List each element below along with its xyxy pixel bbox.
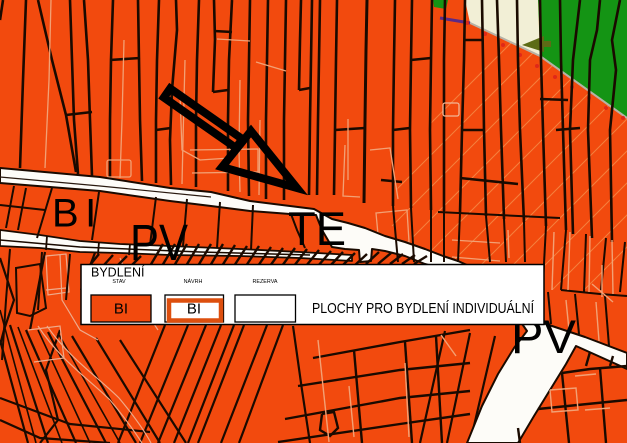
svg-text:BI: BI [114,301,128,318]
svg-text:STAV: STAV [112,279,126,285]
svg-text:TE: TE [288,203,346,256]
svg-text:BI: BI [52,192,103,236]
svg-text:PLOCHY PRO BYDLENÍ INDIVIDUÁLN: PLOCHY PRO BYDLENÍ INDIVIDUÁLNÍ [312,300,534,317]
svg-text:REZERVA: REZERVA [253,279,278,285]
svg-text:NÁVRH: NÁVRH [184,278,203,285]
svg-text:BYDLENÍ: BYDLENÍ [91,265,145,280]
svg-text:PV: PV [130,214,188,271]
svg-text:BI: BI [187,301,201,318]
